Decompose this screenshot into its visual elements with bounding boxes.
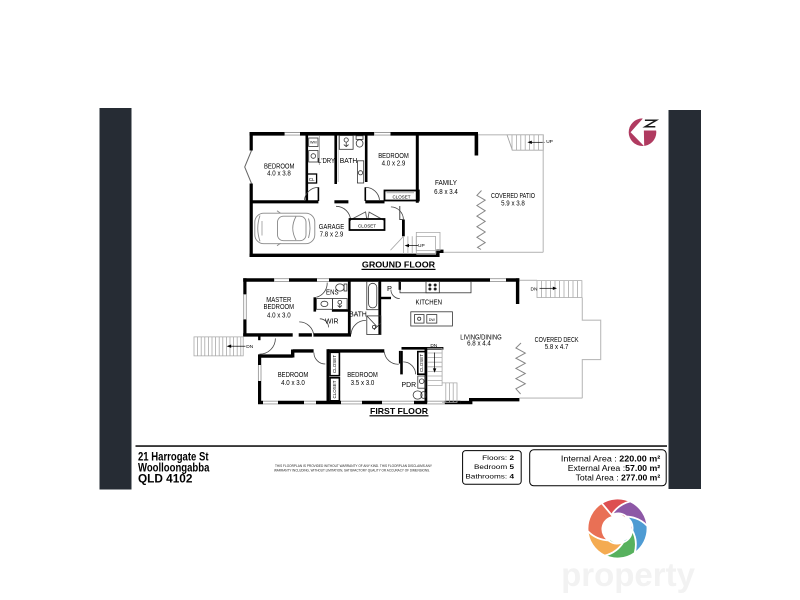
svg-text:BEDROOM: BEDROOM <box>378 151 409 160</box>
svg-text:CLOSET: CLOSET <box>358 223 376 229</box>
svg-text:CLOSET: CLOSET <box>332 380 338 398</box>
svg-text:COVERED DECK: COVERED DECK <box>535 335 579 344</box>
svg-text:BEDROOM: BEDROOM <box>278 370 309 379</box>
svg-text:CL: CL <box>309 177 315 182</box>
svg-text:L'DRY: L'DRY <box>318 156 335 165</box>
svg-text:5.9 x 3.8: 5.9 x 3.8 <box>501 200 525 207</box>
svg-text:UP: UP <box>546 139 553 145</box>
svg-text:5.8 x 4.7: 5.8 x 4.7 <box>545 344 569 351</box>
svg-text:P: P <box>387 284 392 293</box>
svg-text:GROUND FLOOR: GROUND FLOOR <box>362 260 435 270</box>
svg-text:COVERED PATIO: COVERED PATIO <box>491 191 535 200</box>
svg-text:Total Area : 277.00 m²: Total Area : 277.00 m² <box>576 473 661 483</box>
svg-text:External Area :57.00 m²: External Area :57.00 m² <box>568 463 661 473</box>
svg-text:4.0 x 3.0: 4.0 x 3.0 <box>267 312 291 319</box>
svg-text:ENS: ENS <box>326 288 339 297</box>
svg-text:WARRANTY INCLUDING, WITHOUT LI: WARRANTY INCLUDING, WITHOUT LIMITATION, … <box>274 469 430 473</box>
svg-text:property: property <box>561 556 696 593</box>
svg-text:3.5 x 3.0: 3.5 x 3.0 <box>351 380 375 387</box>
svg-text:BEDROOM: BEDROOM <box>347 370 378 379</box>
svg-text:7.8 x 2.9: 7.8 x 2.9 <box>320 231 344 238</box>
svg-text:Internal Area : 220.00 m²: Internal Area : 220.00 m² <box>561 454 660 464</box>
svg-text:FAMILY: FAMILY <box>435 178 457 187</box>
svg-text:WIR: WIR <box>325 317 339 326</box>
svg-text:THIS FLOORPLAN IS PROVIDED WIT: THIS FLOORPLAN IS PROVIDED WITHOUT WARRA… <box>275 464 433 468</box>
svg-text:GARAGE: GARAGE <box>319 222 345 231</box>
svg-text:DW: DW <box>429 318 436 322</box>
svg-text:Floors: 2: Floors: 2 <box>482 454 514 462</box>
svg-text:DN: DN <box>430 343 437 349</box>
svg-text:WM: WM <box>310 141 317 145</box>
svg-text:CLOSET: CLOSET <box>332 355 338 373</box>
svg-text:CLOSET: CLOSET <box>419 354 425 372</box>
svg-text:CLOSET: CLOSET <box>393 195 411 201</box>
svg-text:BEDROOM: BEDROOM <box>264 161 295 170</box>
svg-text:6.8 x 4.4: 6.8 x 4.4 <box>467 341 491 348</box>
svg-text:Bedroom 5: Bedroom 5 <box>474 463 514 471</box>
svg-text:DN: DN <box>246 344 253 350</box>
svg-text:4.0 x 2.9: 4.0 x 2.9 <box>382 161 406 168</box>
svg-text:KITCHEN: KITCHEN <box>416 298 443 307</box>
svg-text:FIRST FLOOR: FIRST FLOOR <box>370 406 428 416</box>
svg-text:Bathrooms: 4: Bathrooms: 4 <box>465 472 515 480</box>
svg-text:DN: DN <box>531 286 538 292</box>
svg-text:QLD 4102: QLD 4102 <box>138 472 193 486</box>
svg-text:BATH: BATH <box>340 156 358 165</box>
svg-text:PDR: PDR <box>402 380 417 389</box>
svg-text:4.0 x 3.8: 4.0 x 3.8 <box>267 170 291 177</box>
svg-text:BEDROOM: BEDROOM <box>264 302 295 311</box>
svg-text:6.8 x 3.4: 6.8 x 3.4 <box>434 189 458 196</box>
svg-text:4.0 x 3.0: 4.0 x 3.0 <box>281 380 305 387</box>
svg-text:UP: UP <box>418 243 425 249</box>
svg-text:BATH: BATH <box>349 310 367 319</box>
